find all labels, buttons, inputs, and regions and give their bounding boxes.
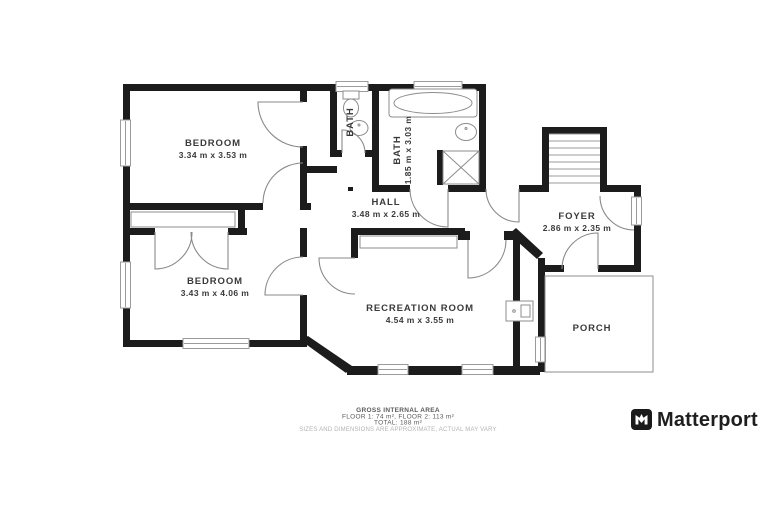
door-recreation bbox=[468, 240, 506, 278]
door-hall-recreation bbox=[319, 258, 355, 294]
bath2-dims: 1.85 m x 3.03 m bbox=[403, 116, 413, 184]
matterport-wordmark: Matterport bbox=[657, 409, 758, 431]
staircase bbox=[549, 134, 600, 183]
recreation-dims: 4.54 m x 3.55 m bbox=[386, 315, 454, 325]
porch-label: PORCH bbox=[573, 323, 612, 334]
footer: GROSS INTERNAL AREA FLOOR 1: 74 m², FLOO… bbox=[299, 407, 497, 433]
hall-label: HALL bbox=[372, 197, 401, 208]
bedroom1-dims: 3.34 m x 3.53 m bbox=[179, 150, 247, 160]
door-hall-foyer bbox=[486, 189, 519, 222]
door-bath2 bbox=[410, 189, 448, 227]
bedroom2-label: BEDROOM bbox=[187, 276, 243, 287]
shower-icon bbox=[443, 151, 479, 184]
hall-counter bbox=[360, 236, 457, 248]
fireplace-icon bbox=[506, 301, 533, 321]
door-closet-right bbox=[191, 232, 228, 269]
floorplan-page: BEDROOM 3.34 m x 3.53 m BATH BATH 1.85 m… bbox=[0, 0, 768, 512]
door-bedroom2 bbox=[265, 257, 303, 295]
door-closet-left bbox=[155, 232, 192, 269]
matterport-logo: Matterport bbox=[631, 409, 758, 431]
bath1-label: BATH bbox=[345, 107, 356, 136]
wardrobe bbox=[131, 212, 235, 227]
sink-icon bbox=[456, 124, 477, 141]
bath2-label: BATH bbox=[392, 135, 403, 164]
total-area: TOTAL: 188 m² bbox=[374, 420, 423, 427]
door-bedroom1-closet bbox=[263, 163, 303, 203]
bedroom2-dims: 3.43 m x 4.06 m bbox=[181, 288, 249, 298]
bathtub-icon bbox=[389, 89, 477, 117]
bath2-label-group: BATH 1.85 m x 3.03 m bbox=[392, 116, 413, 184]
foyer-dims: 2.86 m x 2.35 m bbox=[543, 223, 611, 233]
bedroom1-label: BEDROOM bbox=[185, 138, 241, 149]
floorplan-drawing: BEDROOM 3.34 m x 3.53 m BATH BATH 1.85 m… bbox=[0, 0, 768, 512]
matterport-icon bbox=[631, 409, 652, 430]
door-bedroom1 bbox=[258, 102, 303, 147]
hall-dims: 3.48 m x 2.65 m bbox=[352, 209, 420, 219]
foyer-label: FOYER bbox=[558, 211, 595, 222]
disclaimer: SIZES AND DIMENSIONS ARE APPROXIMATE, AC… bbox=[299, 427, 497, 433]
door-foyer-porch bbox=[562, 233, 598, 269]
recreation-label: RECREATION ROOM bbox=[366, 303, 474, 314]
